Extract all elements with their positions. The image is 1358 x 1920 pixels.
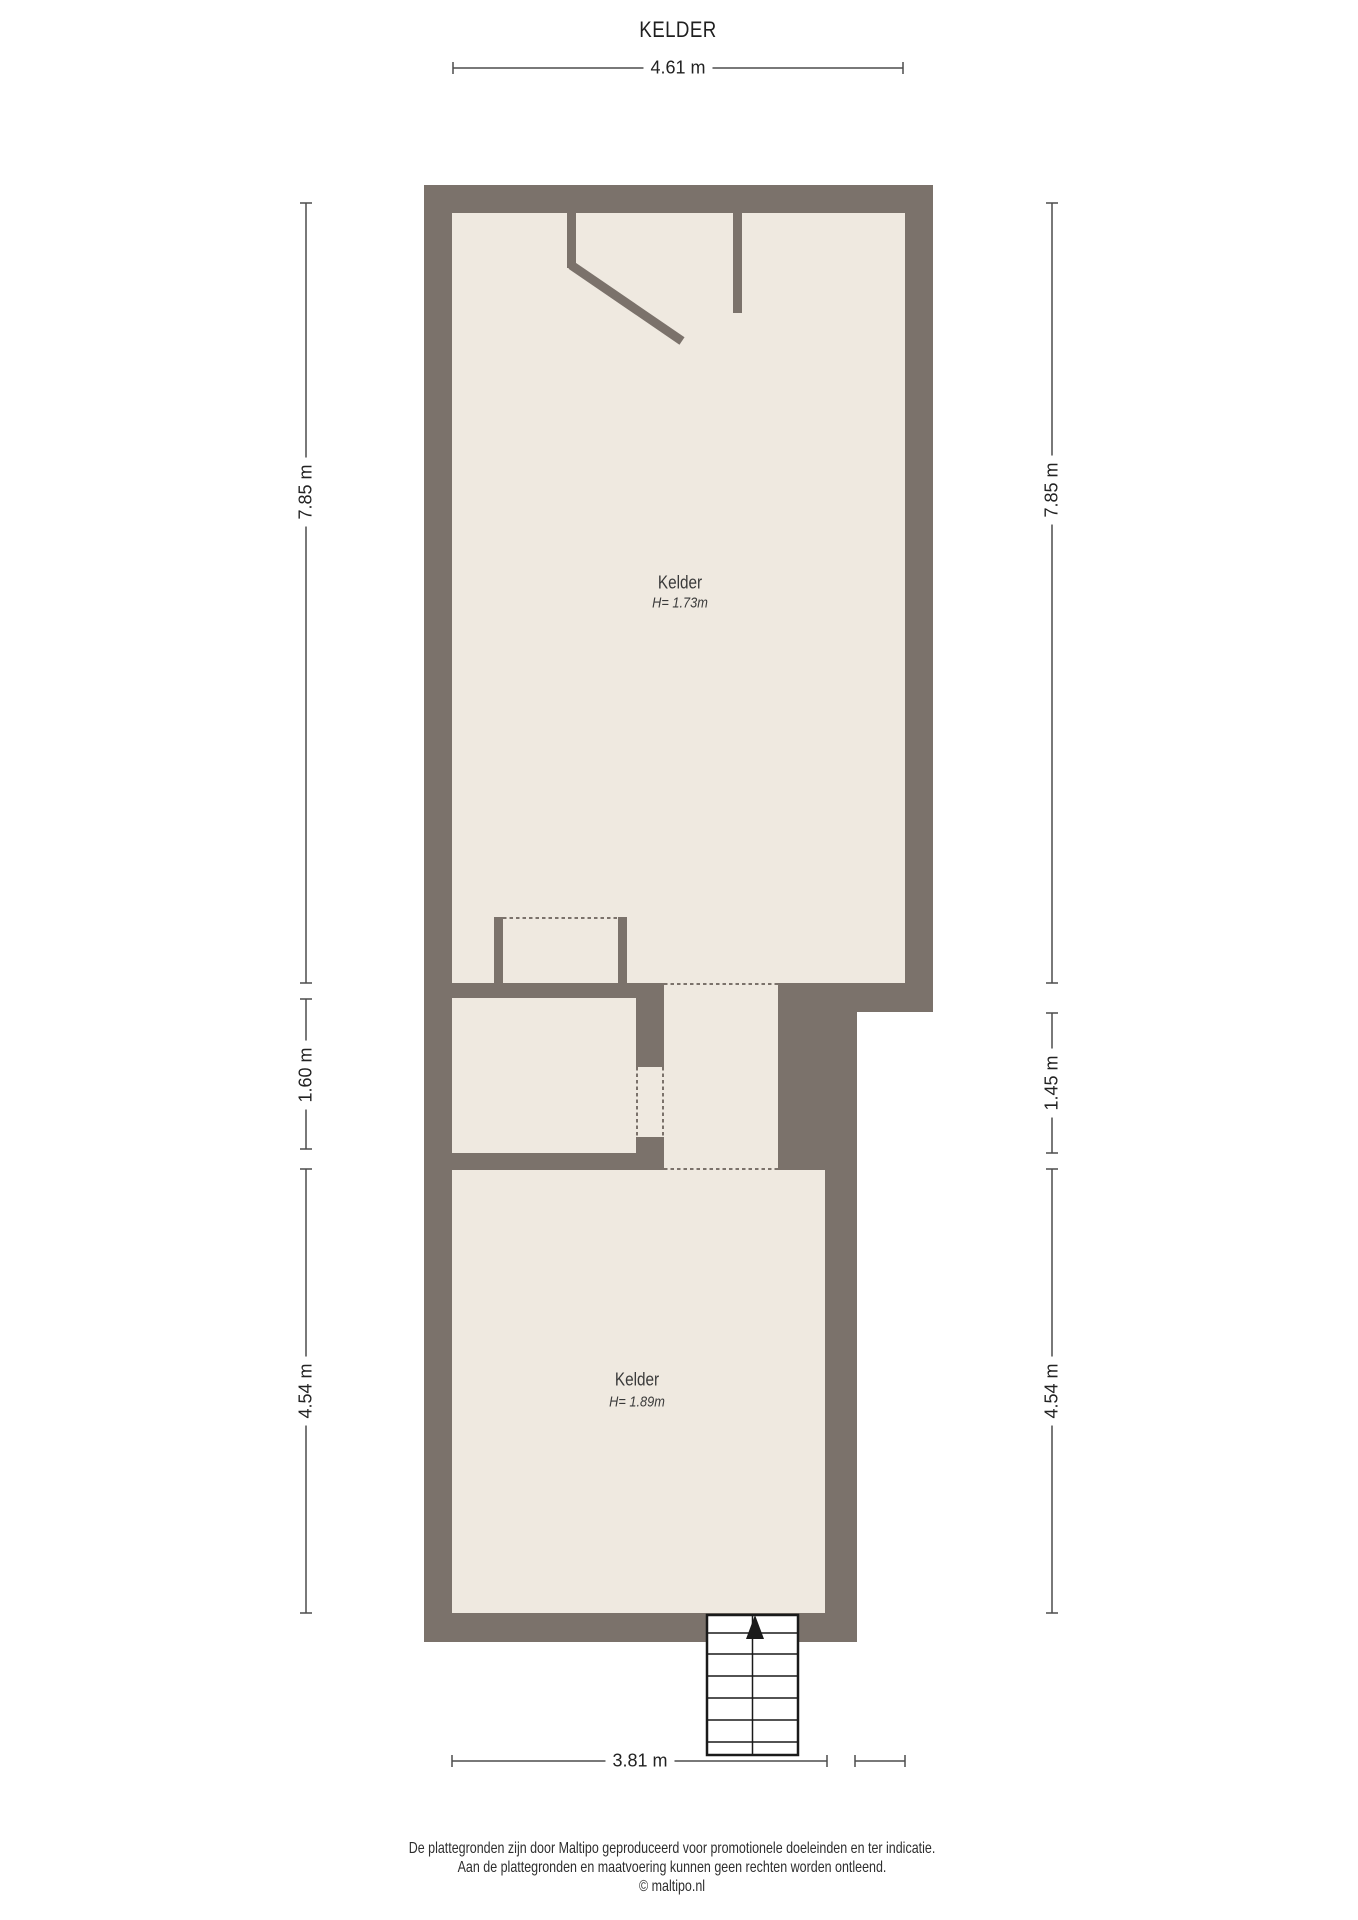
wall-stub-top-right	[733, 213, 742, 313]
dimension-bottom-label: 3.81 m	[605, 1750, 674, 1773]
dimension-top-label: 4.61 m	[643, 57, 712, 80]
room-height-upper-cellar: H= 1.73m	[652, 595, 708, 612]
floor-passage	[636, 1067, 664, 1137]
dim-line-bottom	[452, 1755, 905, 1767]
footer-copyright: © maltipo.nl	[639, 1878, 705, 1896]
stairs	[707, 1615, 798, 1755]
dimension-right-bottom-label: 4.54 m	[1041, 1356, 1064, 1425]
dimension-right-top-label: 7.85 m	[1041, 455, 1064, 524]
wall-stub-nook-left	[494, 917, 503, 983]
wall-stub-nook-right	[618, 917, 627, 983]
dimension-right-middle-label: 1.45 m	[1041, 1048, 1064, 1117]
floor-lower-cellar	[452, 1170, 825, 1613]
floor-corridor	[664, 983, 778, 1170]
dimension-left-bottom-label: 4.54 m	[295, 1356, 318, 1425]
footer-disclaimer-line2: Aan de plattegronden en maatvoering kunn…	[458, 1859, 887, 1877]
room-label-upper-cellar: Kelder	[658, 573, 702, 594]
page-title: KELDER	[639, 17, 716, 43]
floor-left-middle-room	[452, 998, 636, 1153]
room-height-lower-cellar: H= 1.89m	[609, 1394, 665, 1411]
dimension-left-middle-label: 1.60 m	[295, 1040, 318, 1109]
room-label-lower-cellar: Kelder	[615, 1370, 659, 1391]
floorplan-page: KELDER 4.61 m 7.85 m 1.60 m 4.54 m 7.85 …	[0, 0, 1358, 1920]
floorplan-drawing	[0, 0, 1358, 1920]
footer-disclaimer-line1: De plattegronden zijn door Maltipo gepro…	[409, 1840, 936, 1858]
dimension-left-top-label: 7.85 m	[295, 457, 318, 526]
wall-stub-top-left	[567, 213, 576, 268]
